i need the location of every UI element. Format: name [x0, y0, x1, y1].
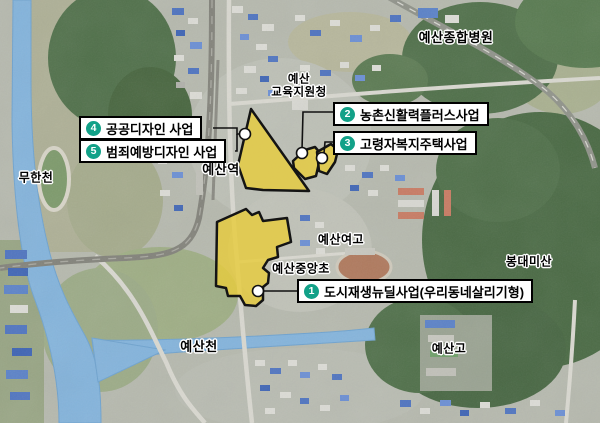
callout-box-crime-prevention-design[interactable]: 5 범죄예방디자인 사업: [79, 139, 226, 163]
callout-number-badge-1: 1: [304, 284, 319, 299]
callout-label-1: 도시재생뉴딜사업(우리동네살리기형): [324, 282, 524, 301]
callout-label-4: 공공디자인 사업: [106, 119, 193, 138]
callout-number-badge-2: 2: [340, 107, 355, 122]
place-label-yesan-high-school: 예산고: [432, 342, 467, 355]
place-label-yesancheon: 예산천: [180, 340, 217, 354]
callout-number-badge-3: 3: [340, 136, 355, 151]
education-office-line1: 예산: [271, 73, 326, 86]
callout-box-urban-regeneration[interactable]: 1 도시재생뉴딜사업(우리동네살리기형): [297, 279, 533, 303]
place-label-bongdaemisan: 봉대미산: [506, 255, 552, 268]
education-office-line2: 교육지원청: [271, 86, 326, 99]
callout-label-3: 고령자복지주택사업: [360, 134, 468, 153]
callout-box-rural-vitality[interactable]: 2 농촌신활력플러스사업: [333, 102, 489, 126]
place-label-hospital: 예산종합병원: [419, 31, 494, 45]
callout-number-badge-5: 5: [86, 144, 101, 159]
callout-box-senior-housing[interactable]: 3 고령자복지주택사업: [333, 131, 477, 155]
place-label-station: 예산역: [202, 163, 239, 177]
satellite-basemap: [0, 0, 600, 423]
anchor-dot-public-design[interactable]: [240, 129, 251, 140]
callout-number-badge-4: 4: [86, 121, 101, 136]
place-label-jungang-elementary: 예산중앙초: [272, 262, 330, 275]
place-label-education-office: 예산 교육지원청: [271, 73, 326, 98]
place-label-girls-high-school: 예산여고: [318, 233, 364, 246]
callout-box-public-design[interactable]: 4 공공디자인 사업: [79, 116, 202, 140]
yesan-project-map: 예산종합병원 예산 교육지원청 예산역 무한천 예산여고 예산중앙초 봉대미산 …: [0, 0, 600, 423]
callout-label-5: 범죄예방디자인 사업: [106, 142, 217, 161]
place-label-muhancheon: 무한천: [19, 171, 54, 184]
anchor-dot-rural-vitality[interactable]: [297, 148, 308, 159]
anchor-dot-senior-housing[interactable]: [317, 153, 328, 164]
anchor-dot-urban-regeneration[interactable]: [253, 286, 264, 297]
callout-label-2: 농촌신활력플러스사업: [360, 105, 480, 124]
